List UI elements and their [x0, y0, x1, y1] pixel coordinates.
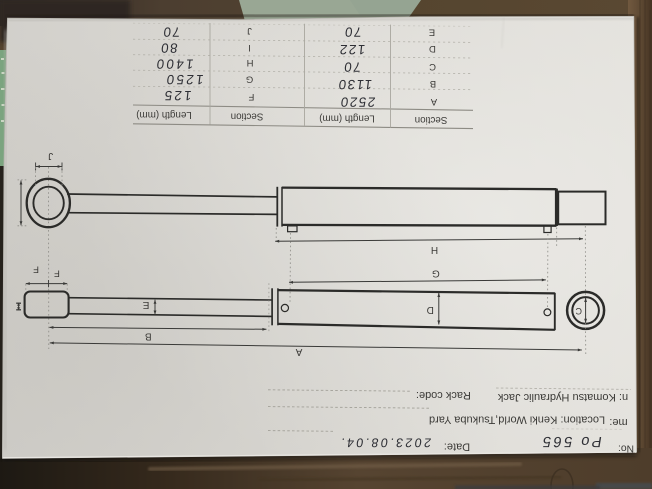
svg-text:2520: 2520 — [338, 95, 376, 110]
svg-text:Length (mm): Length (mm) — [319, 113, 375, 124]
svg-text:1130: 1130 — [336, 77, 373, 92]
svg-text:n: Komatsu Hydraulic Jack: n: Komatsu Hydraulic Jack — [497, 391, 628, 403]
svg-text:Location: Kenki World,Tsukuba: Location: Kenki World,Tsukuba Yard — [429, 413, 605, 425]
svg-text:80: 80 — [159, 41, 178, 56]
svg-text:Length (mm): Length (mm) — [136, 109, 192, 120]
svg-text:E: E — [142, 299, 149, 310]
svg-text:F: F — [33, 264, 39, 275]
svg-text:B: B — [145, 330, 152, 341]
svg-text:H: H — [431, 244, 438, 255]
svg-text:J: J — [247, 25, 252, 36]
svg-text:1400: 1400 — [154, 57, 195, 72]
svg-text:B: B — [430, 78, 436, 89]
svg-text:D: D — [427, 304, 434, 315]
svg-text:D: D — [429, 43, 436, 54]
svg-text:125: 125 — [162, 88, 193, 103]
svg-text:2023.08.04.: 2023.08.04. — [338, 436, 432, 450]
svg-text:Po 565: Po 565 — [539, 433, 603, 449]
svg-text:E: E — [429, 27, 435, 38]
svg-text:G: G — [432, 268, 440, 279]
svg-text:A: A — [430, 96, 437, 107]
svg-text:122: 122 — [338, 42, 366, 57]
svg-text:C: C — [575, 306, 582, 316]
svg-text:F: F — [248, 91, 254, 102]
svg-text:Date:: Date: — [444, 440, 470, 452]
svg-text:70: 70 — [161, 25, 180, 40]
svg-text:70: 70 — [343, 25, 362, 40]
svg-text:C: C — [429, 61, 436, 72]
svg-text:Rack code:: Rack code: — [416, 389, 471, 401]
svg-text:No:: No: — [618, 443, 634, 454]
svg-text:1250: 1250 — [164, 72, 205, 87]
svg-text:F: F — [54, 267, 60, 278]
svg-text:A: A — [295, 346, 302, 357]
svg-text:G: G — [246, 74, 253, 85]
svg-text:Section: Section — [231, 111, 264, 122]
svg-text:me:: me: — [609, 416, 627, 428]
svg-text:70: 70 — [342, 60, 361, 75]
svg-text:I: I — [248, 42, 251, 53]
svg-text:H: H — [246, 57, 253, 68]
svg-text:J: J — [48, 150, 53, 161]
svg-text:Section: Section — [415, 114, 448, 125]
